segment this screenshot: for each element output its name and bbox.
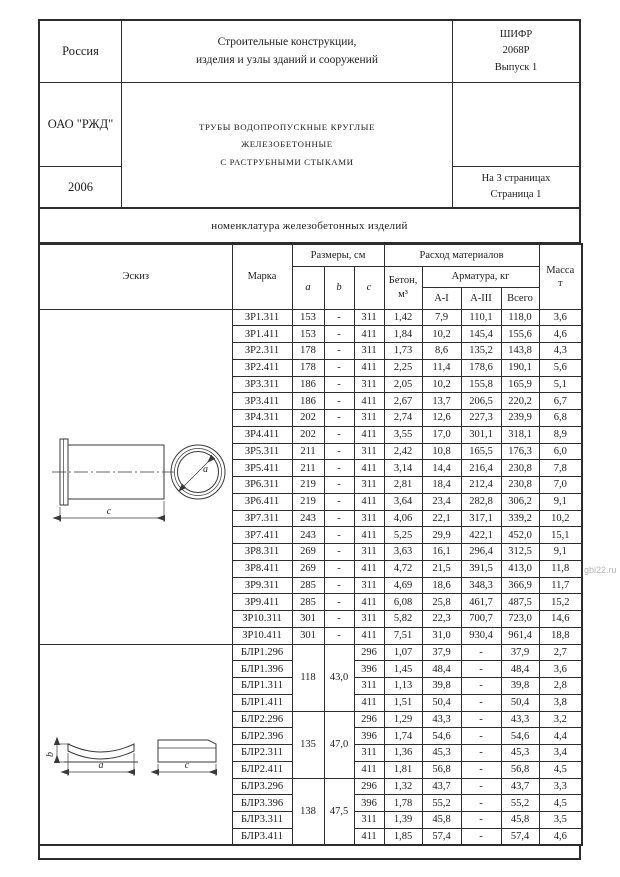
cell-c: 311 (354, 678, 384, 695)
col-header-dim-c: c (354, 266, 384, 309)
cell-mark: ЗР7.311 (232, 510, 292, 527)
dim-label-c: c (107, 506, 112, 517)
cell-c: 396 (354, 728, 384, 745)
cell-concrete: 2,05 (384, 376, 422, 393)
cell-a: 186 (292, 376, 324, 393)
cell-mark: ЗР1.411 (232, 326, 292, 343)
dim-label-b: b (46, 752, 56, 757)
cell-a3: 422,1 (461, 527, 501, 544)
cell-a1: 43,7 (422, 778, 461, 795)
cell-a3: - (461, 694, 501, 711)
cell-a3: 206,5 (461, 393, 501, 410)
cell-mass: 3,2 (539, 711, 582, 728)
cell-a1: 11,4 (422, 359, 461, 376)
cell-concrete: 2,25 (384, 359, 422, 376)
cell-mark: БЛР3.411 (232, 828, 292, 845)
cell-concrete: 1,07 (384, 644, 422, 661)
series-title-cell: Строительные конструкции, изделия и узлы… (122, 21, 453, 83)
cell-mark: БЛР3.311 (232, 812, 292, 829)
cell-mark: ЗР3.311 (232, 376, 292, 393)
cell-total: 312,5 (501, 544, 539, 561)
cell-mark: ЗР1.311 (232, 309, 292, 326)
cell-total: 55,2 (501, 795, 539, 812)
cell-a3: - (461, 761, 501, 778)
cell-a3: - (461, 728, 501, 745)
cell-mass: 15,1 (539, 527, 582, 544)
cell-concrete: 3,63 (384, 544, 422, 561)
cell-a-group: 138 (292, 778, 324, 845)
cell-a3: - (461, 795, 501, 812)
cell-a1: 56,8 (422, 761, 461, 778)
cell-c: 311 (354, 443, 384, 460)
cell-mass: 3,5 (539, 812, 582, 829)
cell-b: - (324, 577, 354, 594)
cell-concrete: 6,08 (384, 594, 422, 611)
cell-a3: - (461, 661, 501, 678)
table-header: Эскиз Марка Размеры, см Расход материало… (39, 244, 582, 309)
cell-a1: 37,9 (422, 644, 461, 661)
cell-mass: 4,6 (539, 326, 582, 343)
cell-a3: 317,1 (461, 510, 501, 527)
cell-a1: 17,0 (422, 426, 461, 443)
cell-concrete: 1,78 (384, 795, 422, 812)
cell-mass: 9,1 (539, 544, 582, 561)
cell-total: 39,8 (501, 678, 539, 695)
cell-a: 219 (292, 477, 324, 494)
cell-a1: 18,6 (422, 577, 461, 594)
cell-total: 43,7 (501, 778, 539, 795)
diameter-arrow (183, 457, 212, 486)
cell-c: 311 (354, 577, 384, 594)
cell-a3: 165,5 (461, 443, 501, 460)
cell-concrete: 5,82 (384, 611, 422, 628)
mass-label-line1: Масса (541, 264, 581, 277)
cell-mark: ЗР2.311 (232, 343, 292, 360)
country-cell: Россия (40, 21, 122, 83)
cell-concrete: 1,51 (384, 694, 422, 711)
cell-a1: 10,2 (422, 376, 461, 393)
cell-a1: 8,6 (422, 343, 461, 360)
cell-a1: 45,8 (422, 812, 461, 829)
pages-line1: На 3 страницах (482, 171, 551, 187)
col-header-rebar: Арматура, кг (422, 266, 539, 287)
cell-a1: 14,4 (422, 460, 461, 477)
cell-c: 311 (354, 544, 384, 561)
cell-mark: ЗР9.411 (232, 594, 292, 611)
cell-mark: БЛР2.296 (232, 711, 292, 728)
cell-c: 411 (354, 326, 384, 343)
cell-c: 311 (354, 812, 384, 829)
cell-a3: - (461, 678, 501, 695)
cell-a3: 296,4 (461, 544, 501, 561)
cell-c: 411 (354, 560, 384, 577)
cell-a: 243 (292, 510, 324, 527)
cell-a3: 145,4 (461, 326, 501, 343)
cell-a1: 13,7 (422, 393, 461, 410)
cipher-cell: ШИФР 2068Р Выпуск 1 (453, 21, 579, 83)
col-header-a3: А-III (461, 287, 501, 309)
col-header-dim-a: a (292, 266, 324, 309)
cell-b: - (324, 560, 354, 577)
cell-mass: 15,2 (539, 594, 582, 611)
cell-mark: ЗР8.411 (232, 560, 292, 577)
cell-mass: 7,0 (539, 477, 582, 494)
cell-total: 45,3 (501, 745, 539, 762)
cell-total: 318,1 (501, 426, 539, 443)
cell-a1: 43,3 (422, 711, 461, 728)
cell-mark: БЛР1.411 (232, 694, 292, 711)
pipe-rows-section: c a ЗР1.311153-3111,427,9110,1118,03,6ЗР… (39, 309, 582, 644)
dim-label-c: c (185, 760, 190, 771)
cell-c: 411 (354, 761, 384, 778)
cell-a: 285 (292, 594, 324, 611)
cell-b: - (324, 393, 354, 410)
cell-a1: 29,9 (422, 527, 461, 544)
col-header-materials: Расход материалов (384, 244, 539, 266)
document-title-cell: ТРУБЫ ВОДОПРОПУСКНЫЕ КРУГЛЫЕ ЖЕЛЕЗОБЕТОН… (122, 83, 453, 207)
cell-c: 396 (354, 661, 384, 678)
cell-a3: 348,3 (461, 577, 501, 594)
cell-concrete: 1,73 (384, 343, 422, 360)
year-label: 2006 (68, 180, 93, 195)
cell-a: 186 (292, 393, 324, 410)
watermark: gbi22.ru (584, 565, 617, 575)
cell-total: 165,9 (501, 376, 539, 393)
cell-a: 301 (292, 627, 324, 644)
cell-a3: 461,7 (461, 594, 501, 611)
cell-a3: 227,3 (461, 410, 501, 427)
doc-title-line2: ЖЕЛЕЗОБЕТОННЫЕ (241, 136, 333, 153)
cell-mass: 4,4 (539, 728, 582, 745)
section-title: номенклатура железобетонных изделий (38, 209, 581, 244)
title-block: Россия Строительные конструкции, изделия… (38, 19, 581, 209)
cell-a1: 23,4 (422, 493, 461, 510)
cell-c: 411 (354, 493, 384, 510)
footer-strip (38, 845, 581, 860)
cell-total: 57,4 (501, 828, 539, 845)
col-header-dimensions: Размеры, см (292, 244, 384, 266)
cell-b: - (324, 627, 354, 644)
cell-mark: БЛР3.296 (232, 778, 292, 795)
cell-concrete: 1,81 (384, 761, 422, 778)
cell-total: 176,3 (501, 443, 539, 460)
cell-mass: 10,2 (539, 510, 582, 527)
cell-a3: - (461, 745, 501, 762)
cell-a: 178 (292, 359, 324, 376)
cell-a1: 22,3 (422, 611, 461, 628)
cell-mark: ЗР7.411 (232, 527, 292, 544)
cell-concrete: 1,84 (384, 326, 422, 343)
cell-mark: ЗР5.311 (232, 443, 292, 460)
cell-b: - (324, 343, 354, 360)
cell-b: - (324, 477, 354, 494)
cell-a-group: 118 (292, 644, 324, 711)
saddle-side-view (158, 740, 216, 762)
cell-mark: ЗР10.411 (232, 627, 292, 644)
cell-a3: 216,4 (461, 460, 501, 477)
cell-total: 452,0 (501, 527, 539, 544)
cell-b: - (324, 594, 354, 611)
cell-a1: 48,4 (422, 661, 461, 678)
cell-b: - (324, 611, 354, 628)
cell-total: 339,2 (501, 510, 539, 527)
cell-mass: 3,8 (539, 694, 582, 711)
cell-concrete: 1,36 (384, 745, 422, 762)
header-row-1: Эскиз Марка Размеры, см Расход материало… (39, 244, 582, 266)
concrete-label-line1: Бетон, (386, 274, 421, 287)
cell-mass: 6,0 (539, 443, 582, 460)
cell-total: 48,4 (501, 661, 539, 678)
cell-a3: 178,6 (461, 359, 501, 376)
cell-b: - (324, 510, 354, 527)
cell-a3: 110,1 (461, 309, 501, 326)
cell-mass: 18,8 (539, 627, 582, 644)
cell-concrete: 1,39 (384, 812, 422, 829)
document-page: Россия Строительные конструкции, изделия… (38, 19, 581, 860)
mass-label-line2: т (541, 277, 581, 290)
block-rows-section: b a c БЛР1.29611843,02961,0737,9-37,92,7… (39, 644, 582, 845)
cell-a1: 45,3 (422, 745, 461, 762)
cell-b-group: 43,0 (324, 644, 354, 711)
cell-a-group: 135 (292, 711, 324, 778)
cell-mark: БЛР3.396 (232, 795, 292, 812)
cell-concrete: 4,69 (384, 577, 422, 594)
cell-mass: 4,6 (539, 828, 582, 845)
cell-total: 230,8 (501, 460, 539, 477)
cell-a1: 50,4 (422, 694, 461, 711)
cell-a3: - (461, 828, 501, 845)
cell-total: 56,8 (501, 761, 539, 778)
cell-total: 118,0 (501, 309, 539, 326)
cell-a: 178 (292, 343, 324, 360)
cell-a: 202 (292, 410, 324, 427)
cipher-line3: Выпуск 1 (495, 60, 538, 76)
cell-a1: 54,6 (422, 728, 461, 745)
cell-b-group: 47,0 (324, 711, 354, 778)
cell-concrete: 5,25 (384, 527, 422, 544)
cell-c: 311 (354, 376, 384, 393)
cell-c: 411 (354, 460, 384, 477)
cell-mass: 6,7 (539, 393, 582, 410)
cell-concrete: 2,81 (384, 477, 422, 494)
cell-a1: 39,8 (422, 678, 461, 695)
cell-c: 411 (354, 527, 384, 544)
cell-mass: 8,9 (539, 426, 582, 443)
cell-concrete: 4,72 (384, 560, 422, 577)
cell-mass: 4,3 (539, 343, 582, 360)
cell-mark: ЗР2.411 (232, 359, 292, 376)
col-header-concrete: Бетон, м³ (384, 266, 422, 309)
cell-mark: ЗР4.311 (232, 410, 292, 427)
cell-a1: 21,5 (422, 560, 461, 577)
cell-mark: БЛР2.411 (232, 761, 292, 778)
pipe-sketch-cell: c a (39, 309, 232, 644)
cell-a: 211 (292, 460, 324, 477)
organization-label: ОАО "РЖД" (48, 117, 113, 132)
cell-a: 301 (292, 611, 324, 628)
cell-concrete: 1,32 (384, 778, 422, 795)
cell-b: - (324, 309, 354, 326)
cell-a3: 391,5 (461, 560, 501, 577)
cell-concrete: 1,45 (384, 661, 422, 678)
cell-a3: 282,8 (461, 493, 501, 510)
cell-mass: 3,4 (539, 745, 582, 762)
cell-mass: 3,6 (539, 661, 582, 678)
cell-total: 366,9 (501, 577, 539, 594)
cell-mark: БЛР1.311 (232, 678, 292, 695)
cell-mark: ЗР5.411 (232, 460, 292, 477)
cell-mark: ЗР4.411 (232, 426, 292, 443)
cell-a3: - (461, 778, 501, 795)
cell-a: 219 (292, 493, 324, 510)
cell-c: 296 (354, 644, 384, 661)
cell-a3: - (461, 711, 501, 728)
cell-a1: 16,1 (422, 544, 461, 561)
cell-b: - (324, 410, 354, 427)
cell-total: 37,9 (501, 644, 539, 661)
cell-mark: БЛР2.396 (232, 728, 292, 745)
cell-total: 50,4 (501, 694, 539, 711)
col-header-dim-b: b (324, 266, 354, 309)
col-header-mark: Марка (232, 244, 292, 309)
cell-mark: ЗР10.311 (232, 611, 292, 628)
cell-mass: 3,6 (539, 309, 582, 326)
cell-mass: 6,8 (539, 410, 582, 427)
pages-cell: На 3 страницах Страница 1 (453, 167, 579, 207)
dim-label-a: a (203, 464, 208, 475)
cell-a3: 155,8 (461, 376, 501, 393)
cell-c: 311 (354, 410, 384, 427)
cell-concrete: 4,06 (384, 510, 422, 527)
cell-c: 296 (354, 711, 384, 728)
cell-total: 487,5 (501, 594, 539, 611)
table-row: c a ЗР1.311153-3111,427,9110,1118,03,6 (39, 309, 582, 326)
cell-a3: 135,2 (461, 343, 501, 360)
cell-a: 269 (292, 544, 324, 561)
cell-total: 723,0 (501, 611, 539, 628)
products-table: Эскиз Марка Размеры, см Расход материало… (38, 243, 583, 846)
cell-c: 411 (354, 694, 384, 711)
organization-cell: ОАО "РЖД" (40, 83, 122, 167)
cell-c: 311 (354, 611, 384, 628)
cell-a: 153 (292, 309, 324, 326)
cell-a: 153 (292, 326, 324, 343)
cell-c: 411 (354, 426, 384, 443)
cipher-line2: 2068Р (503, 43, 530, 59)
series-title-line2: изделия и узлы зданий и сооружений (196, 52, 378, 70)
cell-a3: 301,1 (461, 426, 501, 443)
year-cell: 2006 (40, 167, 122, 207)
cell-c: 311 (354, 343, 384, 360)
cell-total: 239,9 (501, 410, 539, 427)
saddle-sketch-drawing: b a c (46, 705, 226, 783)
cell-a1: 10,2 (422, 326, 461, 343)
cell-mark: ЗР9.311 (232, 577, 292, 594)
cell-total: 43,3 (501, 711, 539, 728)
cell-c: 411 (354, 594, 384, 611)
cell-mass: 5,1 (539, 376, 582, 393)
cell-total: 413,0 (501, 560, 539, 577)
cell-concrete: 2,42 (384, 443, 422, 460)
section-title-label: номенклатура железобетонных изделий (211, 220, 407, 232)
cell-b: - (324, 443, 354, 460)
cell-a: 269 (292, 560, 324, 577)
cell-total: 961,4 (501, 627, 539, 644)
cell-mass: 3,3 (539, 778, 582, 795)
cipher-line1: ШИФР (500, 27, 532, 43)
cell-c: 296 (354, 778, 384, 795)
cell-total: 143,8 (501, 343, 539, 360)
cell-a3: 700,7 (461, 611, 501, 628)
cell-concrete: 1,13 (384, 678, 422, 695)
cell-concrete: 1,29 (384, 711, 422, 728)
cell-c: 411 (354, 393, 384, 410)
series-title-line1: Строительные конструкции, (218, 34, 357, 52)
cell-c: 396 (354, 795, 384, 812)
cell-a1: 25,8 (422, 594, 461, 611)
dim-label-a: a (98, 760, 103, 771)
cell-concrete: 2,74 (384, 410, 422, 427)
cell-mark: ЗР3.411 (232, 393, 292, 410)
cell-a1: 22,1 (422, 510, 461, 527)
doc-title-line1: ТРУБЫ ВОДОПРОПУСКНЫЕ КРУГЛЫЕ (199, 119, 375, 136)
cell-total: 155,6 (501, 326, 539, 343)
cell-a1: 18,4 (422, 477, 461, 494)
doc-title-line3: С РАСТРУБНЫМИ СТЫКАМИ (220, 154, 353, 171)
cell-mark: БЛР1.396 (232, 661, 292, 678)
cell-a: 243 (292, 527, 324, 544)
cell-mass: 2,8 (539, 678, 582, 695)
cell-c: 311 (354, 309, 384, 326)
cell-a3: 212,4 (461, 477, 501, 494)
cell-b: - (324, 359, 354, 376)
cell-total: 306,2 (501, 493, 539, 510)
concrete-label-line2: м³ (386, 288, 421, 301)
cell-mass: 7,8 (539, 460, 582, 477)
cell-c: 411 (354, 828, 384, 845)
cell-b: - (324, 376, 354, 393)
cell-a1: 57,4 (422, 828, 461, 845)
cell-b: - (324, 493, 354, 510)
cell-mark: БЛР2.311 (232, 745, 292, 762)
cell-a1: 12,6 (422, 410, 461, 427)
cell-total: 220,2 (501, 393, 539, 410)
cell-concrete: 3,14 (384, 460, 422, 477)
saddle-sketch-cell: b a c (39, 644, 232, 845)
saddle-plate (68, 744, 134, 759)
cell-concrete: 3,64 (384, 493, 422, 510)
cell-a1: 31,0 (422, 627, 461, 644)
cell-b: - (324, 426, 354, 443)
cell-a3: - (461, 812, 501, 829)
cell-mass: 11,7 (539, 577, 582, 594)
cell-a1: 10,8 (422, 443, 461, 460)
cell-c: 411 (354, 627, 384, 644)
cell-a3: 930,4 (461, 627, 501, 644)
cell-c: 311 (354, 510, 384, 527)
cell-c: 311 (354, 745, 384, 762)
cell-concrete: 1,85 (384, 828, 422, 845)
cell-b: - (324, 326, 354, 343)
cell-c: 311 (354, 477, 384, 494)
cell-mass: 11,8 (539, 560, 582, 577)
cell-b: - (324, 527, 354, 544)
cell-concrete: 1,42 (384, 309, 422, 326)
cell-mass: 5,6 (539, 359, 582, 376)
cell-total: 190,1 (501, 359, 539, 376)
cell-concrete: 1,74 (384, 728, 422, 745)
cell-a1: 7,9 (422, 309, 461, 326)
